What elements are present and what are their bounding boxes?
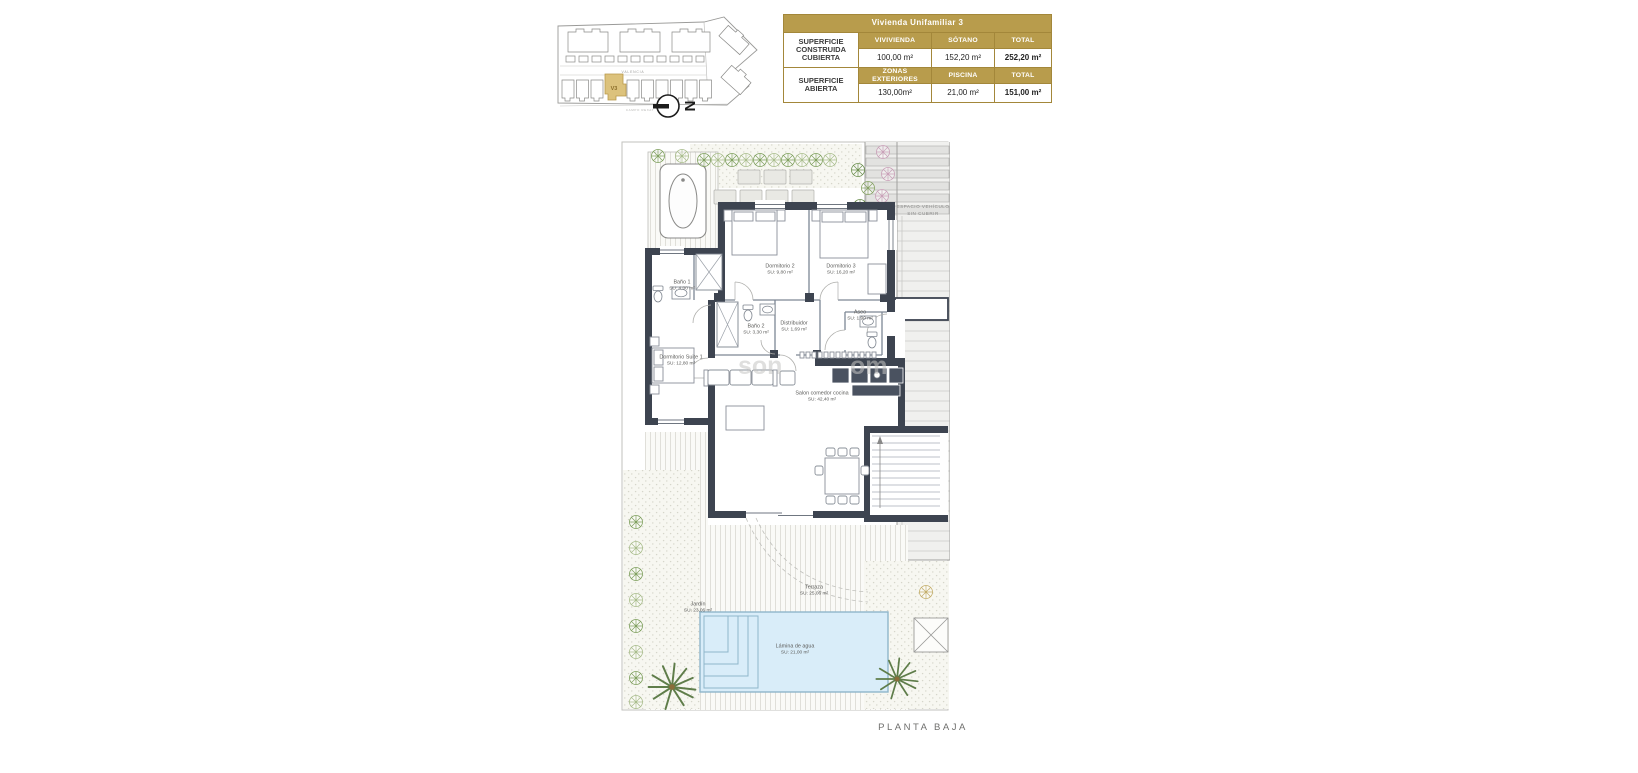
driveway-label-line1: ESPACIO VEHÍCULO — [897, 204, 950, 209]
room-area: SU: 1,69 m² — [780, 327, 807, 333]
room-label-salon: Salon comedor cocina SU: 42,40 m² — [795, 391, 848, 404]
planter — [914, 618, 948, 652]
watermark-fragment-2: om — [850, 352, 888, 381]
room-area: SU: 25,06 m² — [800, 591, 828, 597]
room-name: Baño 2 — [743, 324, 769, 331]
floorplan-drawing — [620, 140, 950, 720]
room-area: SU: 21,00 m² — [776, 650, 815, 656]
compass-n-label: N — [681, 101, 698, 112]
room-label-dormitorio2: Dormitorio 2 SU: 9,80 m² — [765, 264, 794, 277]
spa-deck — [648, 152, 718, 250]
col-header-total-1: TOTAL — [995, 33, 1052, 49]
keyplan-houses-wing — [719, 23, 753, 94]
col-header-total-2: TOTAL — [995, 68, 1052, 84]
room-name: Terraza — [800, 585, 828, 592]
value-zonas-exteriores: 130,00m² — [859, 84, 932, 103]
room-name: Dormitorio 3 — [826, 264, 855, 271]
driveway-label: ESPACIO VEHÍCULO SIN CUBRIR — [897, 204, 950, 218]
room-area: SU: 9,80 m² — [765, 270, 794, 276]
room-area: SU: 12,80 m² — [659, 361, 702, 367]
tan-bush — [920, 586, 933, 599]
keyplan-street-top-label: VALENCIA — [622, 70, 645, 74]
room-name: Baño 1 — [669, 280, 695, 287]
keyplan-houses-top — [566, 29, 710, 62]
col-header-piscina: PISCINA — [932, 68, 995, 84]
room-name: Jardín — [684, 602, 712, 609]
room-label-bano2: Baño 2 SU: 3,30 m² — [743, 324, 769, 337]
value-piscina: 21,00 m² — [932, 84, 995, 103]
room-label-jardin: Jardín SU: 23,06 m² — [684, 602, 712, 615]
room-label-bano1: Baño 1 SU: 4,00 m² — [669, 280, 695, 293]
room-name: Distribuidor — [780, 321, 807, 328]
room-label-terraza: Terraza SU: 25,06 m² — [800, 585, 828, 598]
room-area: SU: 16,20 m² — [826, 270, 855, 276]
floorplan-sheet: { "keyplan": { "street_top": "VALENCIA",… — [0, 0, 1638, 773]
table-title: Vivienda Unifamiliar 3 — [784, 15, 1052, 33]
driveway-label-line2: SIN CUBRIR — [907, 211, 939, 216]
room-label-aseo: Aseo SU: 1,90 m² — [847, 310, 873, 323]
row-group-label-covered: SUPERFICIE CONSTRUIDA CUBIERTA — [784, 33, 859, 68]
room-area: SU: 42,40 m² — [795, 397, 848, 403]
room-label-lamina-de-agua: Lámina de agua SU: 21,00 m² — [776, 644, 815, 657]
row-group-label-open: SUPERFICIE ABIERTA — [784, 68, 859, 103]
col-header-zonas-exteriores: ZONAS EXTERIORES — [859, 68, 932, 84]
room-label-distribuidor: Distribuidor SU: 1,69 m² — [780, 321, 807, 334]
room-label-dormitorio3: Dormitorio 3 SU: 16,20 m² — [826, 264, 855, 277]
surface-area-table: Vivienda Unifamiliar 3 SUPERFICIE CONSTR… — [783, 14, 1052, 103]
value-vivienda: 100,00 m² — [859, 49, 932, 68]
room-name: Dormitorio Suite 1 — [659, 355, 702, 362]
room-name: Lámina de agua — [776, 644, 815, 651]
value-total-2: 151,00 m² — [995, 84, 1052, 103]
north-compass-icon: N — [650, 88, 710, 128]
room-name: Dormitorio 2 — [765, 264, 794, 271]
value-total-1: 252,20 m² — [995, 49, 1052, 68]
room-area: SU: 4,00 m² — [669, 286, 695, 292]
room-area: SU: 3,30 m² — [743, 330, 769, 336]
plan-title-planta-baja: PLANTA BAJA — [858, 722, 988, 733]
room-name: Aseo — [847, 310, 873, 317]
room-label-suite1: Dormitorio Suite 1 SU: 12,80 m² — [659, 355, 702, 368]
value-sotano: 152,20 m² — [932, 49, 995, 68]
site-keyplan: VALENCIA V3 CAMPO REXAT — [528, 12, 760, 118]
col-header-sotano: SÓTANO — [932, 33, 995, 49]
room-area: SU: 1,90 m² — [847, 316, 873, 322]
col-header-vivienda: VIVIVIENDA — [859, 33, 932, 49]
keyplan-unit-label: V3 — [611, 86, 618, 92]
room-area: SU: 23,06 m² — [684, 608, 712, 614]
watermark-fragment-1: son — [738, 352, 782, 381]
room-name: Salon comedor cocina — [795, 391, 848, 398]
